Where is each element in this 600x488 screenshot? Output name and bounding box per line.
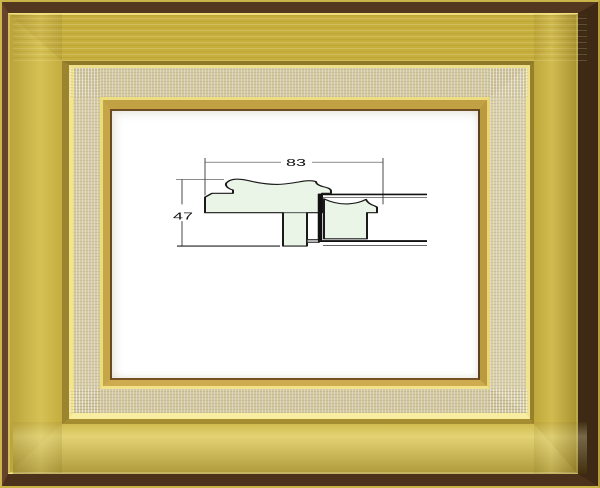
height-label: 47 xyxy=(173,211,193,222)
main-molding-profile xyxy=(205,179,331,246)
cross-section-diagram: 83 47 xyxy=(160,150,440,336)
width-label: 83 xyxy=(286,158,306,169)
frame-cove-highlight: 83 47 xyxy=(69,65,530,419)
step-block xyxy=(307,239,319,242)
artwork-area: 83 47 xyxy=(112,111,478,378)
gold-picture-frame: 83 47 xyxy=(0,0,600,488)
frame-gold-flat-band: 83 47 xyxy=(10,15,576,472)
frame-cove-shadow: 83 47 xyxy=(62,61,534,424)
frame-inner-brown-line: 83 47 xyxy=(110,109,480,380)
frame-inner-gold-lip: 83 47 xyxy=(103,100,487,386)
frame-outer-brown-band: 83 47 xyxy=(2,2,598,486)
frame-gold-hairline: 83 47 xyxy=(8,13,578,474)
frame-outer-gilt-edge: 83 47 xyxy=(0,0,600,488)
liner-gilt-edge: 83 47 xyxy=(100,97,490,389)
inner-molding-profile xyxy=(324,199,377,239)
frame-linen-liner: 83 47 xyxy=(73,68,526,413)
